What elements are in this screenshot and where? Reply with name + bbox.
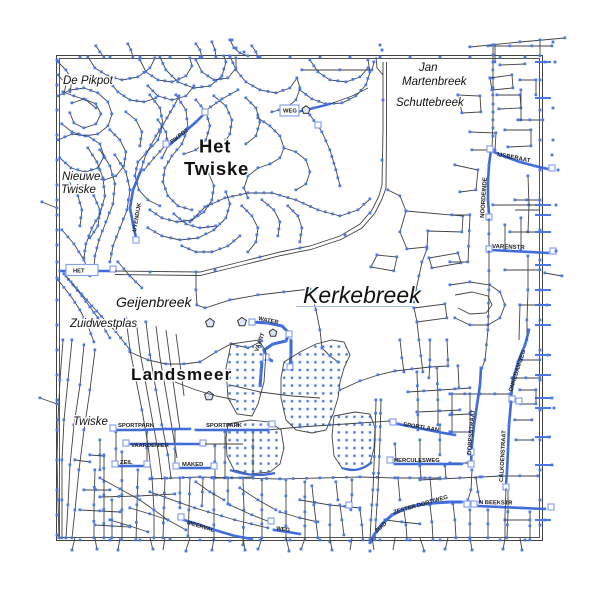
svg-text:Nieuwe: Nieuwe <box>62 171 100 183</box>
svg-text:ZEIL: ZEIL <box>120 460 133 466</box>
svg-text:Geijenbreek: Geijenbreek <box>116 294 192 310</box>
svg-text:SPORTPARK: SPORTPARK <box>118 423 155 429</box>
svg-text:VAARDENIER: VAARDENIER <box>131 443 170 449</box>
svg-text:Twiske: Twiske <box>73 416 108 428</box>
svg-text:MAKED: MAKED <box>182 462 203 468</box>
svg-text:Martenbreek: Martenbreek <box>402 76 468 88</box>
svg-text:Twiske: Twiske <box>184 158 249 179</box>
svg-text:De Pikpot: De Pikpot <box>63 75 114 87</box>
svg-text:VARENSTR: VARENSTR <box>492 244 525 251</box>
svg-text:WEG: WEG <box>283 109 297 115</box>
svg-text:Kerkebreek: Kerkebreek <box>303 282 422 308</box>
svg-text:Schuttebreek: Schuttebreek <box>396 97 465 109</box>
svg-text:Het: Het <box>199 136 231 157</box>
svg-text:SPORTPARK: SPORTPARK <box>206 423 243 429</box>
svg-text:Jan: Jan <box>418 62 438 74</box>
svg-text:Zuidwestplas: Zuidwestplas <box>69 318 137 330</box>
svg-text:N BEEKSTR: N BEEKSTR <box>479 500 513 507</box>
svg-text:Landsmeer: Landsmeer <box>131 365 233 384</box>
svg-text:Twiske: Twiske <box>61 184 96 196</box>
svg-text:HET: HET <box>73 269 85 275</box>
svg-text:HERCULESWEG: HERCULESWEG <box>394 458 440 464</box>
